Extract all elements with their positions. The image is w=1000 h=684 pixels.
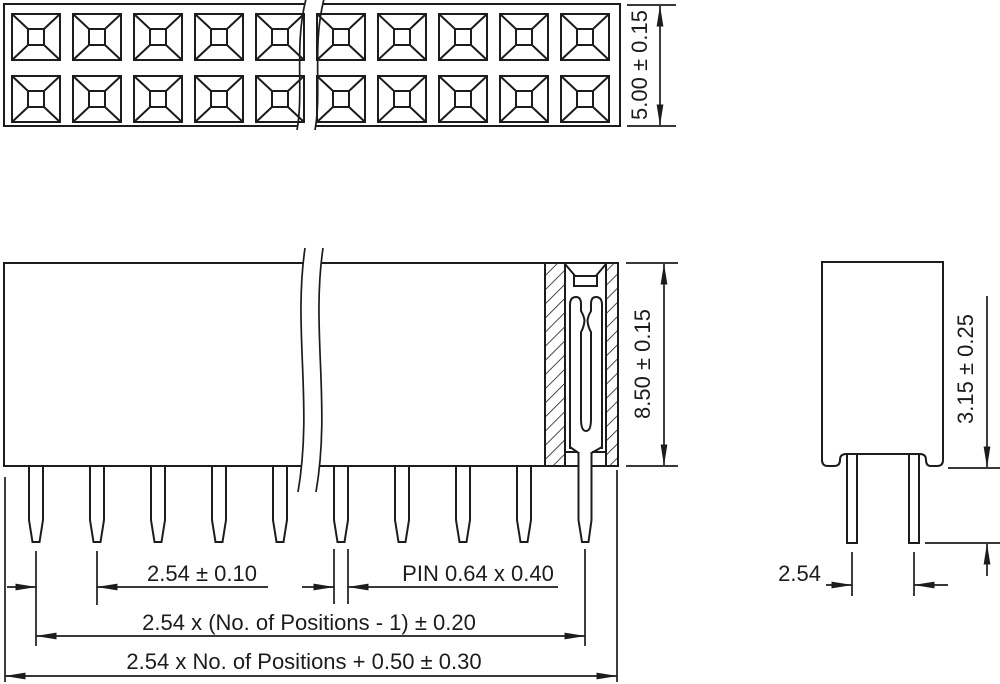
pin <box>456 466 470 542</box>
pin <box>847 454 857 543</box>
pin <box>273 466 287 542</box>
contact-entry <box>574 276 597 286</box>
dim-row-pitch-label: 2.54 <box>778 561 821 586</box>
contact-cross-section <box>545 263 618 542</box>
side-view-body <box>822 262 943 466</box>
connector-technical-drawing: 5.00 ± 0.15 <box>0 0 1000 684</box>
dim-body-height-label: 8.50 ± 0.15 <box>630 309 655 419</box>
front-view: 8.50 ± 0.15 2.54 ± 0.10 PIN 0.64 x 0.40 … <box>4 248 678 682</box>
dim-body-height: 8.50 ± 0.15 <box>626 263 678 466</box>
dim-contact-pitch-label: 2.54 ± 0.10 <box>147 561 257 586</box>
dim-row-width: 5.00 ± 0.15 <box>627 5 676 126</box>
dim-row-width-label: 5.00 ± 0.15 <box>627 10 652 120</box>
section-wall-right <box>606 263 618 466</box>
pin <box>334 466 348 542</box>
dim-overall-length-label: 2.54 x No. of Positions + 0.50 ± 0.30 <box>126 649 481 674</box>
side-view: 3.15 ± 0.25 2.54 <box>778 262 1000 596</box>
pin <box>90 466 104 542</box>
dim-pin-protrusion-label: 3.15 ± 0.25 <box>953 314 978 424</box>
dim-pin-size-label: PIN 0.64 x 0.40 <box>402 561 554 586</box>
technical-drawing-page: 5.00 ± 0.15 <box>0 0 1000 684</box>
pin <box>395 466 409 542</box>
dim-centers-span-label: 2.54 x (No. of Positions - 1) ± 0.20 <box>142 610 476 635</box>
dim-pin-size: PIN 0.64 x 0.40 <box>302 549 558 604</box>
pin <box>151 466 165 542</box>
top-view: 5.00 ± 0.15 <box>4 0 676 130</box>
section-wall-left <box>545 263 565 466</box>
pin <box>212 466 226 542</box>
pin <box>909 454 919 543</box>
pin <box>29 466 43 542</box>
pin <box>579 452 592 542</box>
pin <box>517 466 531 542</box>
dim-row-pitch: 2.54 <box>778 552 948 596</box>
